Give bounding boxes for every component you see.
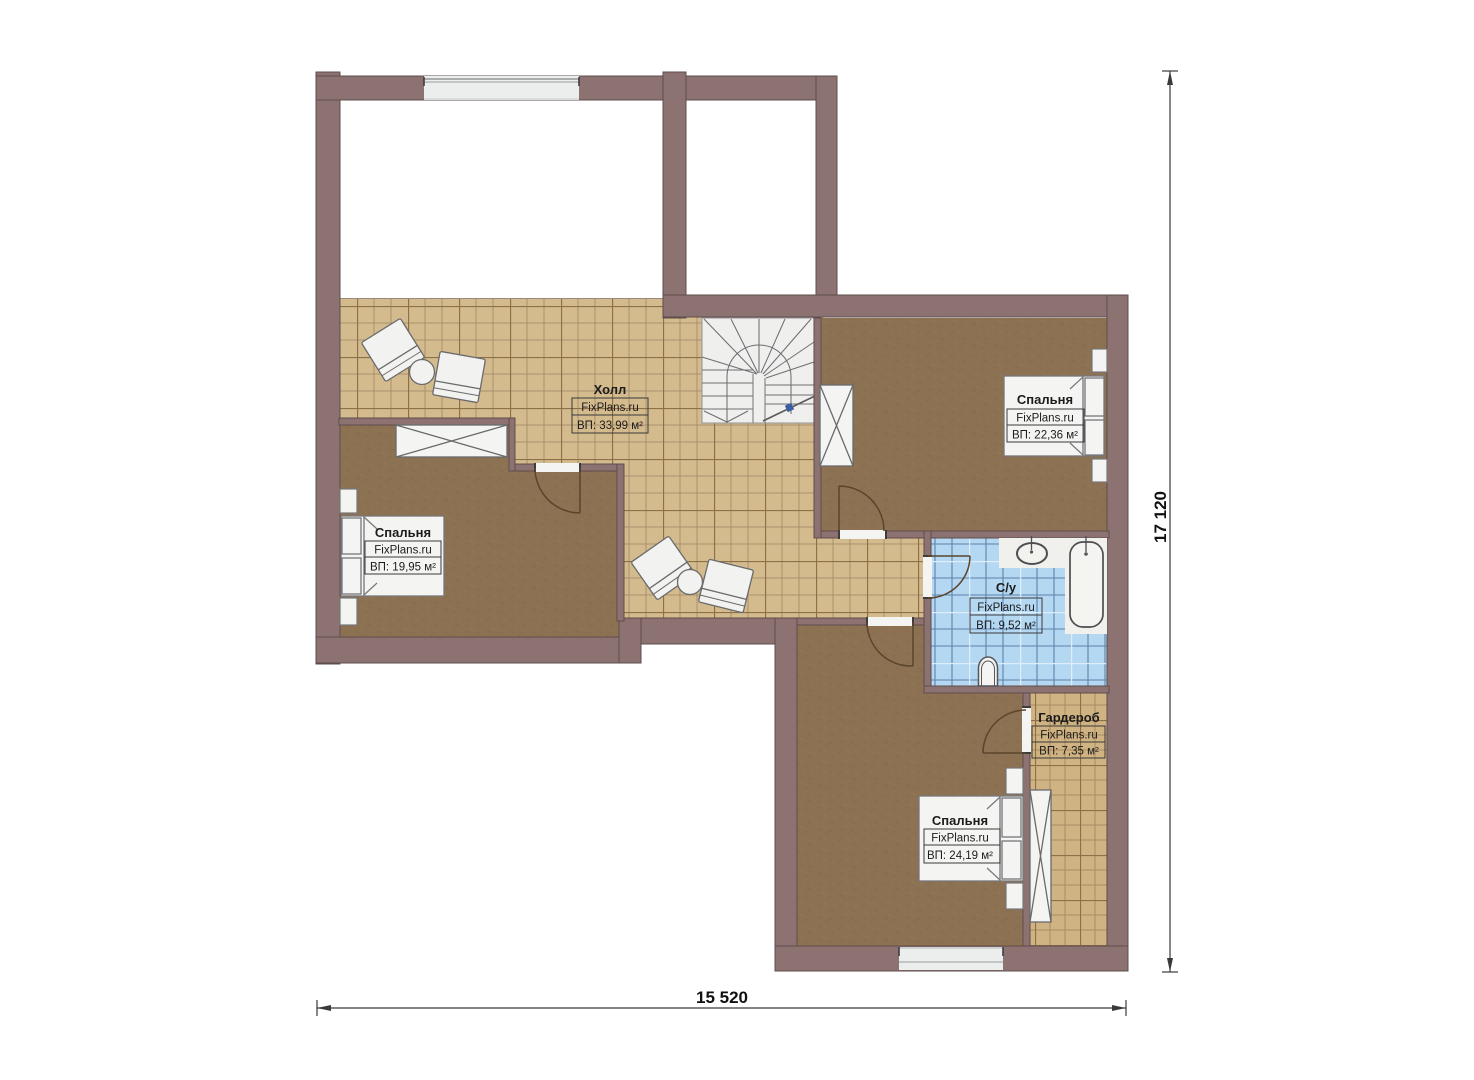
svg-text:ВП: 33,99 м²: ВП: 33,99 м² <box>577 420 643 432</box>
svg-text:Холл: Холл <box>594 382 627 397</box>
svg-text:FixPlans.ru: FixPlans.ru <box>977 602 1035 614</box>
svg-text:Спальня: Спальня <box>1017 392 1073 407</box>
svg-text:FixPlans.ru: FixPlans.ru <box>1040 730 1098 742</box>
svg-text:ВП: 22,36 м²: ВП: 22,36 м² <box>1012 430 1078 442</box>
svg-text:FixPlans.ru: FixPlans.ru <box>931 833 989 845</box>
svg-text:FixPlans.ru: FixPlans.ru <box>374 545 432 557</box>
svg-text:Гардероб: Гардероб <box>1038 710 1099 725</box>
svg-text:Спальня: Спальня <box>375 525 431 540</box>
svg-text:ВП: 7,35 м²: ВП: 7,35 м² <box>1039 746 1099 758</box>
svg-text:FixPlans.ru: FixPlans.ru <box>1016 413 1074 425</box>
svg-text:15 520: 15 520 <box>696 988 748 1007</box>
svg-text:ВП: 9,52 м²: ВП: 9,52 м² <box>976 620 1036 632</box>
svg-text:ВП: 24,19 м²: ВП: 24,19 м² <box>927 850 993 862</box>
svg-text:FixPlans.ru: FixPlans.ru <box>581 402 639 414</box>
svg-text:С/у: С/у <box>996 580 1017 595</box>
svg-text:17 120: 17 120 <box>1151 491 1170 543</box>
svg-text:ВП: 19,95 м²: ВП: 19,95 м² <box>370 562 436 574</box>
svg-text:Спальня: Спальня <box>932 813 988 828</box>
